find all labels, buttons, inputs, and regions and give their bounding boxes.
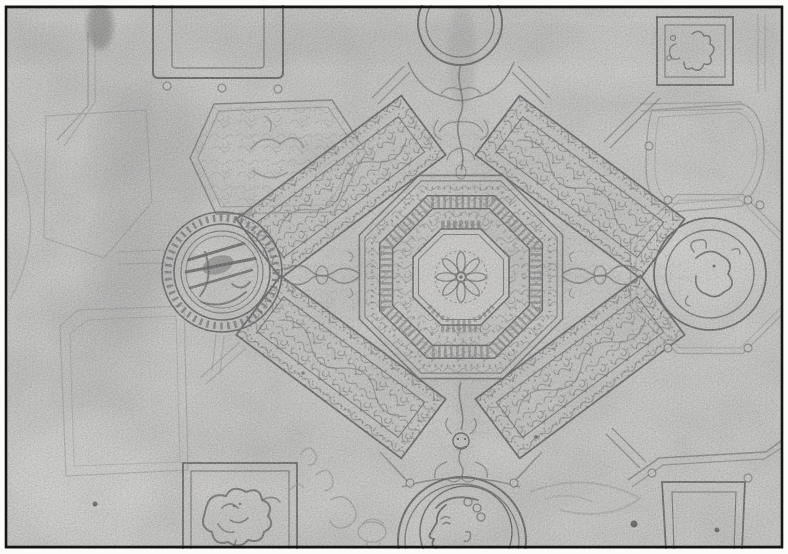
scanned-drawing-page: Scanned ceiling-design drawing Black-and…: [0, 0, 788, 554]
ceiling-design-drawing: Scanned ceiling-design drawing Black-and…: [0, 0, 788, 554]
grain-light: [0, 0, 788, 554]
